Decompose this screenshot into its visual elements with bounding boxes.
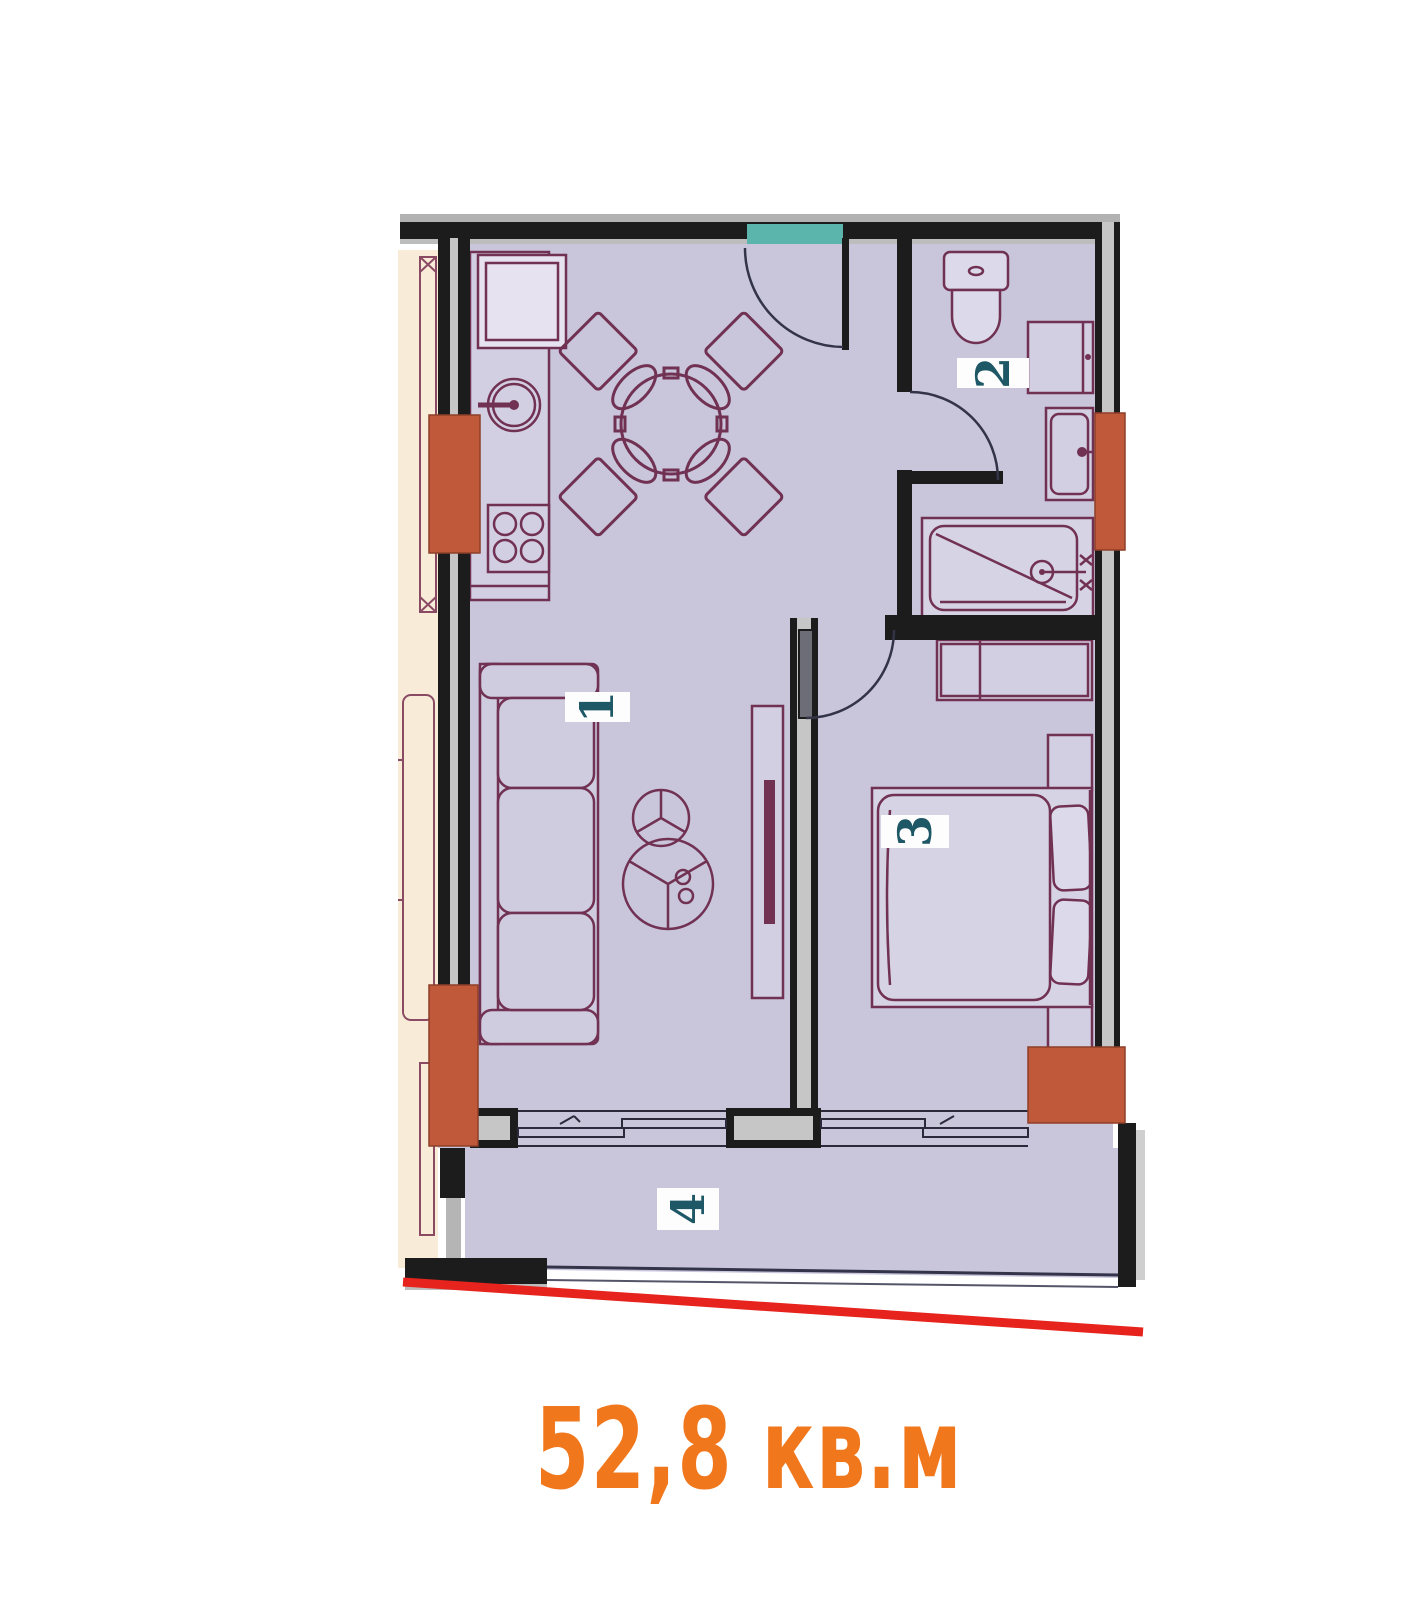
column-right-bottom [1028, 1047, 1125, 1123]
tv-icon [764, 780, 775, 924]
room-number-4: 4 [661, 1193, 715, 1225]
nightstand-bottom [1048, 1005, 1092, 1053]
fridge [478, 255, 566, 348]
wardrobe [937, 640, 1092, 700]
room-number-3: 3 [888, 815, 942, 847]
washing-machine-icon [1028, 322, 1093, 393]
room-label-3: 3 [881, 815, 949, 848]
column-right-top [1095, 413, 1125, 550]
entry-threshold [747, 224, 843, 244]
floor-plan-drawing: 1 2 3 4 52,8 кв.м [0, 0, 1410, 1600]
room-number-1: 1 [570, 691, 624, 723]
tv-stand [752, 706, 783, 998]
column-left-top [429, 415, 480, 553]
room-label-1: 1 [565, 691, 630, 723]
room-number-2: 2 [966, 357, 1020, 389]
bathtub-icon [922, 518, 1093, 618]
area-label: 52,8 кв.м [535, 1385, 963, 1515]
nightstand-top [1048, 735, 1092, 790]
vanity-sink-icon [1046, 408, 1093, 500]
stove [488, 505, 549, 572]
balcony-floor [465, 1148, 1118, 1278]
room-label-4: 4 [657, 1188, 719, 1230]
floor-plan-page: 1 2 3 4 52,8 кв.м [0, 0, 1410, 1600]
room-label-2: 2 [957, 357, 1029, 389]
column-left-bottom [429, 985, 478, 1146]
